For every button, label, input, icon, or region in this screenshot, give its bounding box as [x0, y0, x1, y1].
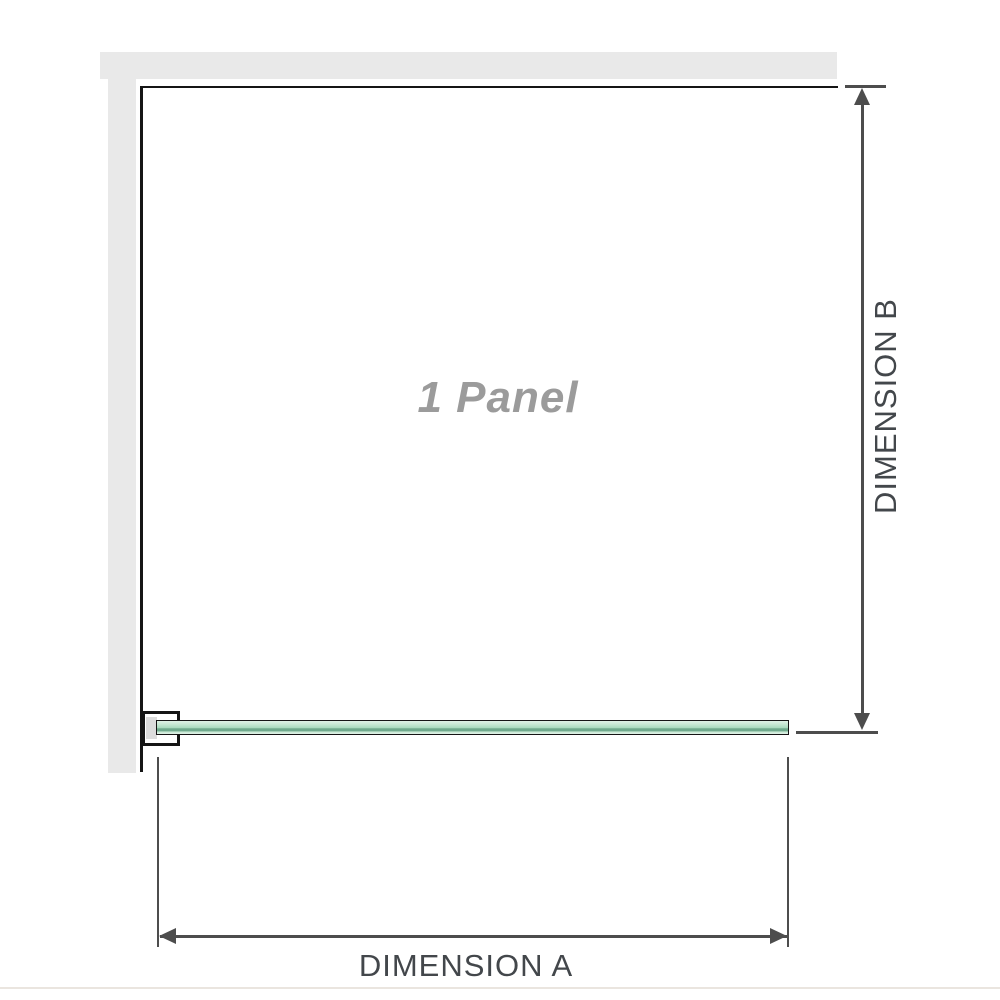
page-baseline-rule	[0, 987, 1000, 989]
dimension-b-bottom-tick	[796, 731, 878, 734]
dimension-a-line	[160, 935, 787, 938]
enclosure-top-edge	[140, 86, 838, 89]
arrow-right-icon	[770, 928, 787, 944]
glass-panel	[156, 720, 789, 735]
arrow-up-icon	[854, 88, 870, 105]
panel-dimension-diagram: 1 Panel DIMENSION B DIMENSION A	[0, 0, 1000, 1000]
dimension-a-right-extension	[787, 757, 790, 947]
dimension-b-line	[861, 96, 864, 721]
enclosure-left-edge	[140, 86, 143, 772]
arrow-left-icon	[159, 928, 176, 944]
arrow-down-icon	[854, 713, 870, 730]
panel-count-label: 1 Panel	[398, 368, 598, 428]
wall-segment-top	[100, 52, 837, 79]
dimension-b-label: DIMENSION B	[869, 314, 903, 514]
wall-segment-left	[108, 52, 136, 773]
dimension-a-label: DIMENSION A	[316, 949, 616, 983]
dimension-a-left-extension	[157, 757, 160, 947]
